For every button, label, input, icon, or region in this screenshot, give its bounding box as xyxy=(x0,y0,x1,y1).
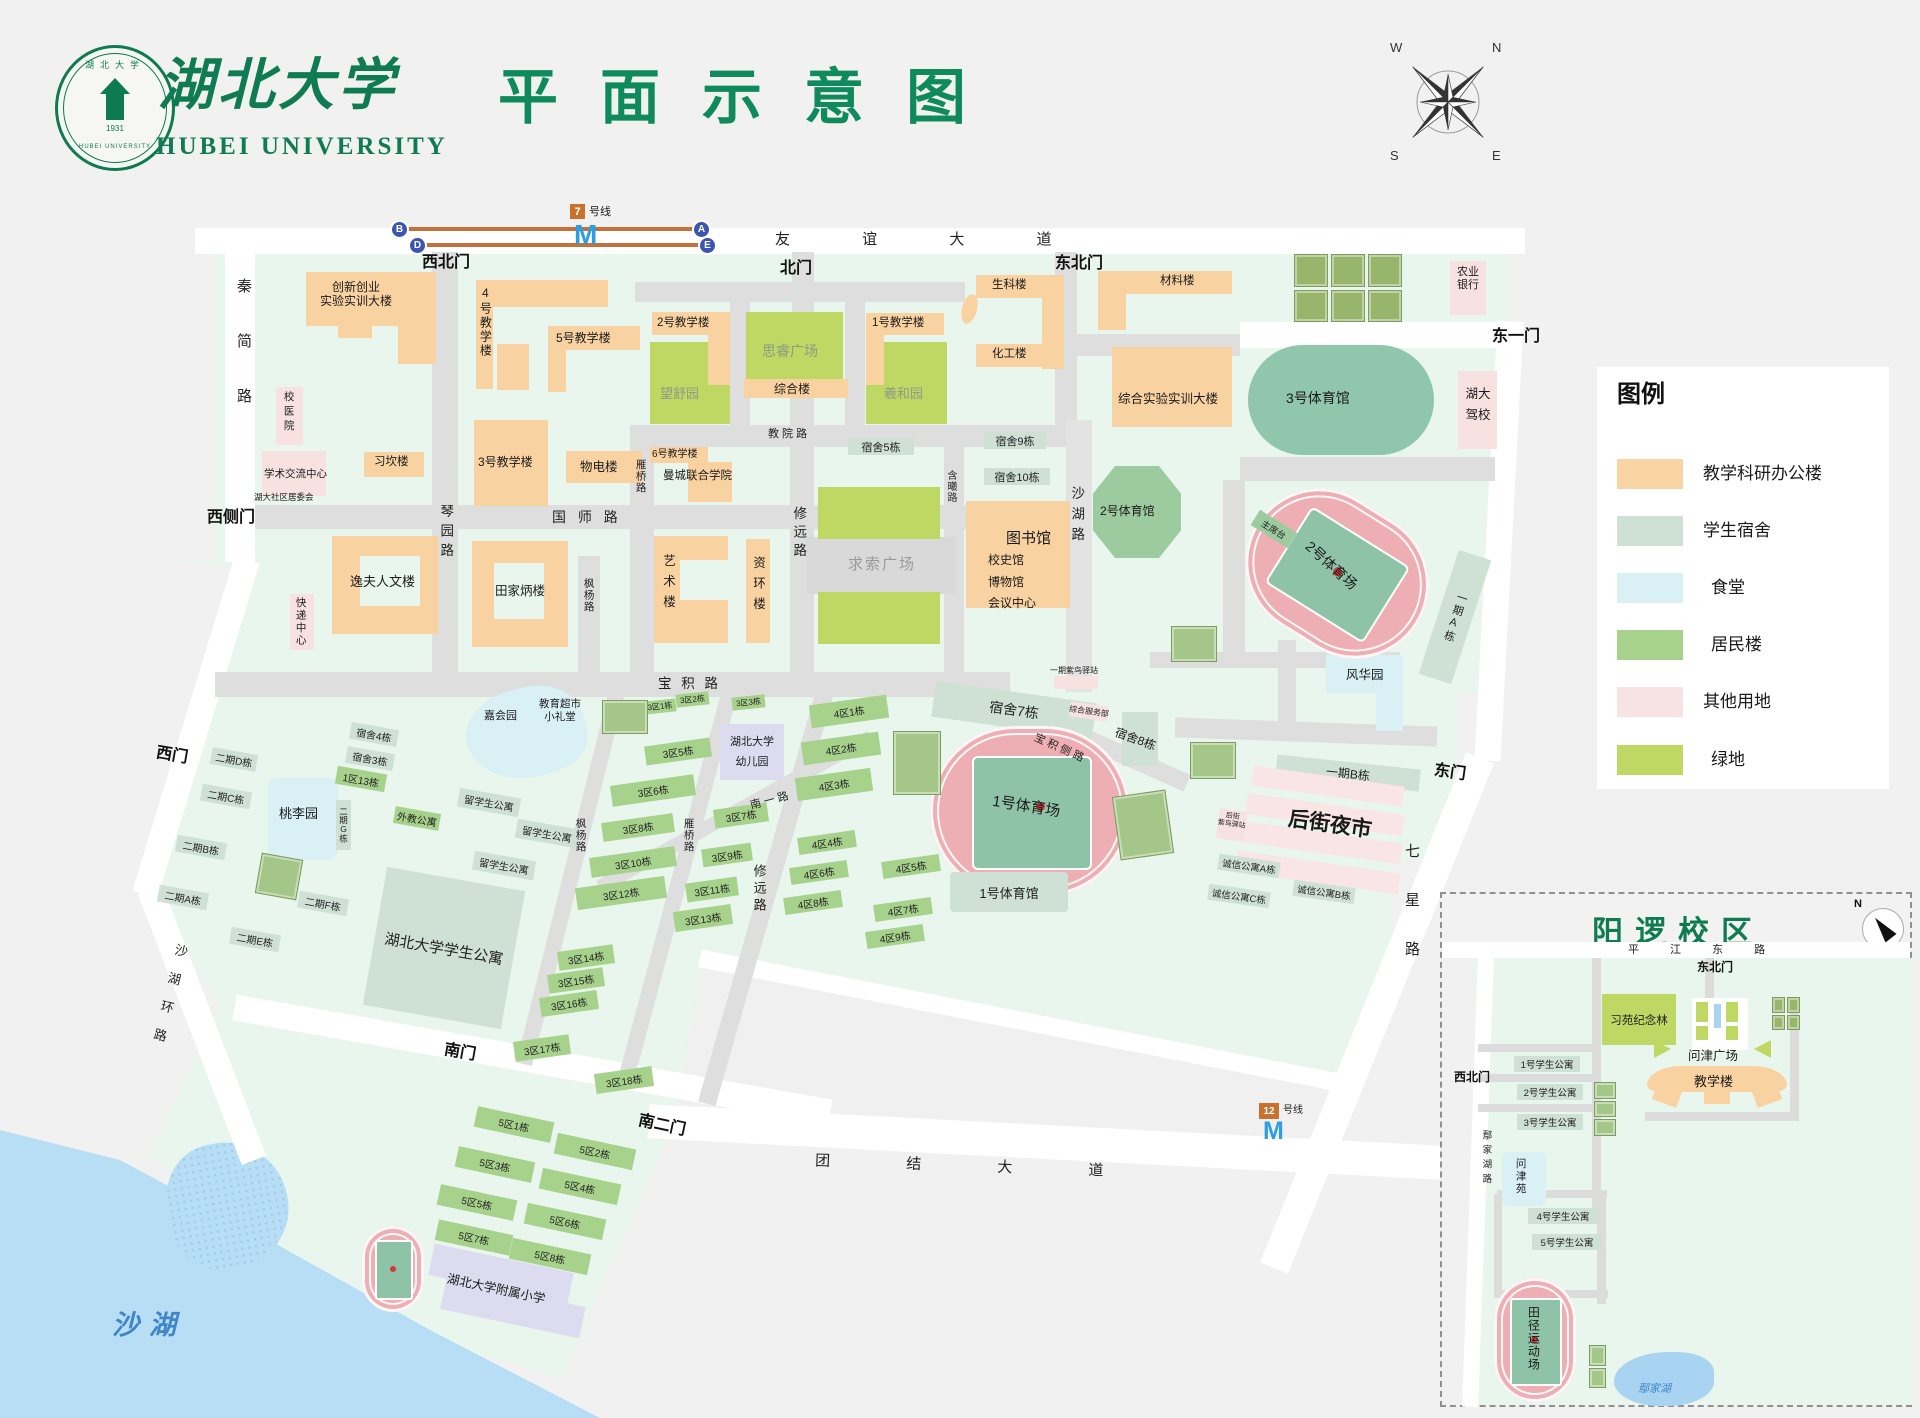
bld-gym1: 1号体育馆 xyxy=(950,872,1068,912)
lbl-road-qinjian: 秦简路 xyxy=(234,278,252,443)
bld-su9: 宿舍9栋 xyxy=(984,432,1046,449)
lbl-yey-1: 湖北大学 xyxy=(730,736,774,748)
pagoda-body xyxy=(106,94,124,120)
road-fengyang-upper xyxy=(578,556,600,678)
qiusuo-green-north xyxy=(818,487,940,539)
lbl-road-yanqiao-u: 雁桥路 xyxy=(634,459,647,494)
inset-xiyuan: 习苑纪念林 xyxy=(1602,994,1676,1045)
inset-court xyxy=(1589,1345,1606,1366)
lbl-xihe: 羲和园 xyxy=(884,386,923,402)
inset-path-h2 xyxy=(1478,1074,1596,1082)
lbl-qiusuo: 求索广场 xyxy=(848,556,916,574)
inset-gy1: 1号学生公寓 xyxy=(1514,1056,1580,1072)
inset-plaza-green-3 xyxy=(1726,1002,1738,1022)
road-inner-1 xyxy=(845,282,865,425)
pagoda-icon xyxy=(100,78,130,94)
inset-tennis-court xyxy=(1787,1015,1800,1031)
lbl-zihuan: 资环楼 xyxy=(750,556,765,618)
lbl-kuaidi: 快递中心 xyxy=(294,597,307,647)
inset-court xyxy=(1594,1101,1616,1118)
inset-plaza-tri-right xyxy=(1754,1040,1771,1058)
bld-yishu-notch xyxy=(680,560,728,600)
inset-tennis-court xyxy=(1787,997,1800,1013)
bld-yqzn xyxy=(1054,676,1098,689)
compass-e: E xyxy=(1492,148,1501,164)
lbl-road-baoji: 宝 积 路 xyxy=(658,676,721,692)
lbl-xiaoshiguan: 校史馆 xyxy=(988,553,1024,567)
inset-plaza-tri-left xyxy=(1654,1040,1671,1058)
inset-track: 田径运动场 xyxy=(1494,1278,1576,1402)
lbl-road-fengyang-d: 枫杨路 xyxy=(574,818,587,853)
bld-chuangxin-c xyxy=(338,326,372,338)
bld-zsys xyxy=(1112,347,1232,427)
legend-label-green: 绿地 xyxy=(1711,750,1745,770)
seal-year: 1931 xyxy=(58,124,172,134)
lbl-road-youyi: 友 谊 大 道 xyxy=(775,231,1086,249)
lbl-jysc: 教育超市小礼堂 xyxy=(530,698,590,723)
university-calligraphy: 湖北大学 xyxy=(158,52,398,119)
inset-lbl-track: 田径运动场 xyxy=(1526,1306,1540,1371)
inset-gy5: 5号学生公寓 xyxy=(1532,1234,1602,1250)
inset-gy3: 3号学生公寓 xyxy=(1517,1114,1583,1130)
lbl-sirui: 思睿广场 xyxy=(762,343,818,360)
legend-swatch-dorm xyxy=(1617,516,1683,546)
inset-lbl-jxl: 教学楼 xyxy=(1694,1074,1733,1090)
lbl-road-jiaoyuan: 教 院 路 xyxy=(768,428,807,441)
metro-exit-b: B xyxy=(390,220,409,239)
lbl-jysc-1: 教育超市 xyxy=(539,698,581,710)
lbl-yqzn: 一期紫鸟驿站 xyxy=(1050,666,1098,676)
inset-tennis-court xyxy=(1772,1015,1785,1031)
lbl-gym2: 2号体育馆 xyxy=(1100,504,1155,518)
lbl-road-guoshi: 国 师 路 xyxy=(552,509,622,526)
lbl-zonghelou: 综合楼 xyxy=(774,382,810,396)
lbl-cailiao: 材料楼 xyxy=(1160,275,1195,289)
tennis-courts-grid xyxy=(1294,254,1402,322)
lbl-bowuguan: 博物馆 xyxy=(988,575,1024,589)
inset-path-h4 xyxy=(1645,1112,1799,1121)
inset-gate-nw: 西北门 xyxy=(1454,1070,1490,1084)
lbl-zsys: 综合实验实训大楼 xyxy=(1118,392,1218,407)
inset-plaza-green-4 xyxy=(1726,1026,1738,1040)
inset-jxl-stub xyxy=(1704,1090,1730,1104)
lbl-road-yanqiao-d: 雁桥路 xyxy=(682,818,695,853)
lbl-huiyizhongxin: 会议中心 xyxy=(988,596,1036,610)
court-6 xyxy=(255,853,303,901)
inset-path-h3 xyxy=(1478,1104,1596,1112)
inset-gate-ne: 东北门 xyxy=(1697,960,1733,974)
seal-en-text: HUBEI UNIVERSITY xyxy=(58,144,172,151)
lbl-yifu: 逸夫人文楼 xyxy=(350,574,415,590)
inset-courts-lake xyxy=(1589,1345,1606,1388)
inset-gy4: 4号学生公寓 xyxy=(1528,1208,1598,1224)
legend-label-dorm: 学生宿舍 xyxy=(1703,521,1771,541)
lbl-line12-suffix: 号线 xyxy=(1283,1105,1303,1117)
inset-compass-n: N xyxy=(1854,898,1862,911)
metro-m-icon-7: M xyxy=(574,221,597,249)
lbl-t2: 2号教学楼 xyxy=(657,317,709,331)
lbl-t4: 4号教学楼 xyxy=(478,286,492,396)
lbl-jysc-2: 小礼堂 xyxy=(544,711,576,723)
compass-rose: W N S E xyxy=(1390,36,1506,166)
lbl-road-hanxi: 含曦路 xyxy=(944,470,956,503)
inset-lbl-lake: 鄢家湖 xyxy=(1638,1382,1671,1395)
gate-xibeimen: 西北门 xyxy=(422,253,470,272)
court-3 xyxy=(893,731,941,795)
lbl-chuangxin-1: 创新创业 xyxy=(332,280,380,294)
inset-compass-arrow xyxy=(1869,913,1896,942)
lbl-tianjiabing: 田家炳楼 xyxy=(495,584,545,599)
qiusuo-green-south xyxy=(818,592,940,644)
inset-court xyxy=(1594,1119,1616,1136)
lbl-shahu-lake: 沙湖 xyxy=(112,1310,186,1342)
tennis-court xyxy=(1294,290,1328,323)
stadium-sw-dot xyxy=(390,1266,396,1272)
inset-court xyxy=(1594,1082,1616,1099)
lbl-xikan: 习坎楼 xyxy=(374,456,409,470)
lbl-chuangxin: 创新创业实验实训大楼 xyxy=(306,280,406,309)
lbl-bank-1: 农业 xyxy=(1457,266,1479,278)
lbl-chuangxin-2: 实验实训大楼 xyxy=(320,294,392,308)
court-4 xyxy=(1112,790,1174,861)
lbl-jiaxiao: 湖大驾校 xyxy=(1460,384,1496,427)
inset-courts-mid xyxy=(1594,1082,1616,1136)
gate-dongyimen: 东一门 xyxy=(1492,327,1540,346)
compass-s: S xyxy=(1390,148,1399,164)
lbl-jiahui: 嘉会园 xyxy=(484,710,517,723)
metro-exit-d: D xyxy=(408,236,427,255)
lbl-mancheng: 曼城联合学院 xyxy=(663,470,732,484)
inset-lbl-plaza: 问津广场 xyxy=(1688,1049,1738,1064)
inset-plaza-green-1 xyxy=(1696,1002,1708,1022)
court-1 xyxy=(1171,626,1217,662)
road-north-service xyxy=(635,282,965,302)
lbl-shequ: 湖大社区居委会 xyxy=(254,492,314,502)
inset-plaza-pool xyxy=(1714,1004,1721,1028)
lbl-yiqiA: 一期A栋 xyxy=(1439,589,1471,644)
compass-n: N xyxy=(1492,40,1501,56)
inset-plaza-green-2 xyxy=(1696,1026,1708,1040)
inset-gy2: 2号学生公寓 xyxy=(1517,1084,1583,1100)
lbl-road-xiuyuan-u: 修远路 xyxy=(790,506,806,562)
legend-title: 图例 xyxy=(1617,381,1665,410)
lbl-road-shahu: 沙湖路 xyxy=(1068,486,1084,548)
bld-t2-leg xyxy=(708,335,730,385)
legend-swatch-green xyxy=(1617,745,1683,775)
inset-path-h1 xyxy=(1478,1044,1596,1052)
metro-line7-badge: 7 xyxy=(570,204,585,219)
page-title: 平面示意图 xyxy=(498,62,1008,134)
bld-eqG: 二期G栋 xyxy=(336,800,351,850)
lbl-wudian: 物电楼 xyxy=(580,460,618,475)
lbl-yishu: 艺术楼 xyxy=(660,554,675,616)
lbl-line7-suffix: 号线 xyxy=(589,206,611,219)
gate-xicemen: 西侧门 xyxy=(207,508,255,527)
lbl-jiaxiao-2: 驾校 xyxy=(1465,408,1490,422)
lbl-library: 图书馆 xyxy=(1006,530,1051,548)
bld-su10: 宿舍10栋 xyxy=(984,468,1050,485)
bld-t4-blob xyxy=(497,344,529,390)
legend-swatch-resident xyxy=(1617,630,1683,660)
inset-lbl-road-top: 平 江 东 路 xyxy=(1628,944,1779,957)
lbl-xueshu: 学术交流中心 xyxy=(264,468,327,481)
lbl-shengke: 生科楼 xyxy=(992,279,1027,293)
lbl-t6: 6号教学楼 xyxy=(652,449,698,461)
legend-label-canteen: 食堂 xyxy=(1711,578,1745,598)
lbl-wangshu: 望舒园 xyxy=(660,386,699,402)
bld-cailiao-leg xyxy=(1098,294,1126,330)
tennis-court xyxy=(1331,254,1365,287)
legend-label-teaching: 教学科研办公楼 xyxy=(1703,464,1822,484)
legend-label-resident: 居民楼 xyxy=(1711,635,1762,655)
lbl-xiaoyiyuan: 校医院 xyxy=(282,391,295,435)
court-2 xyxy=(1190,742,1236,779)
bld-su5: 宿舍5栋 xyxy=(848,438,914,455)
metro-line7-b-a xyxy=(402,227,698,231)
stadium-sw-small xyxy=(362,1226,424,1312)
legend: 图例 教学科研办公楼 学生宿舍 食堂 居民楼 其他用地 绿地 xyxy=(1597,367,1889,789)
lbl-taoli: 桃李园 xyxy=(279,806,318,822)
compass-w: W xyxy=(1390,40,1402,56)
tennis-court xyxy=(1331,290,1365,323)
legend-swatch-other xyxy=(1617,687,1683,717)
lbl-yey-2: 幼儿园 xyxy=(736,756,769,768)
inset-lbl-wjy: 问津苑 xyxy=(1514,1158,1527,1196)
inset-tennis-court xyxy=(1772,997,1785,1013)
lbl-gym3: 3号体育馆 xyxy=(1286,390,1350,407)
bld-hbgy: 湖北大学学生公寓 xyxy=(363,867,525,1029)
lbl-jiaxiao-1: 湖大 xyxy=(1465,387,1490,401)
lbl-bank: 农业银行 xyxy=(1452,266,1484,292)
lbl-youeryuan: 湖北大学幼儿园 xyxy=(722,733,782,773)
tennis-court xyxy=(1368,290,1402,323)
legend-swatch-teaching xyxy=(1617,459,1683,489)
metro-m-icon-12: M xyxy=(1263,1119,1284,1144)
inset-tennis xyxy=(1772,997,1800,1030)
tennis-court xyxy=(1294,254,1328,287)
court-5 xyxy=(602,700,648,734)
gate-beimen: 北门 xyxy=(780,259,812,278)
gate-dongbeimen: 东北门 xyxy=(1055,254,1103,273)
lbl-road-qixing: 七星路 xyxy=(1402,843,1420,990)
lbl-t1: 1号教学楼 xyxy=(872,317,924,331)
legend-label-other: 其他用地 xyxy=(1703,692,1771,712)
university-en-name: HUBEI UNIVERSITY xyxy=(156,132,448,162)
lbl-t3: 3号教学楼 xyxy=(478,455,533,469)
metro-line7-d-e xyxy=(420,243,710,247)
bld-t1-leg xyxy=(866,335,884,385)
lbl-road-fengyang-u: 枫杨路 xyxy=(582,578,595,613)
lbl-huagong: 化工楼 xyxy=(992,348,1027,362)
campus-map: 湖北大学 1931 HUBEI UNIVERSITY 湖北大学 HUBEI UN… xyxy=(0,0,1920,1418)
inset-lbl-road-left: 鄢家湖路 xyxy=(1480,1130,1491,1188)
bld-t5-leg xyxy=(548,350,566,392)
seal-cn-text: 湖北大学 xyxy=(58,60,172,71)
metro-exit-e: E xyxy=(698,236,717,255)
legend-swatch-canteen xyxy=(1617,573,1683,603)
lbl-road-xiuyuan-d: 修远路 xyxy=(751,864,767,915)
lbl-bank-2: 银行 xyxy=(1457,279,1479,291)
bld-t4-bar xyxy=(476,280,608,307)
lbl-t5: 5号教学楼 xyxy=(556,331,611,345)
lbl-eqG: 二期G栋 xyxy=(338,807,350,843)
tennis-court xyxy=(1368,254,1402,287)
lbl-road-qinyuan: 琴园路 xyxy=(437,504,453,563)
inset-lake xyxy=(1614,1352,1714,1406)
inset-court xyxy=(1589,1368,1606,1389)
yangluo-campus-inset: 阳逻校区 N 平 江 东 路 东北门 西北门 鄢家湖路 习苑纪念林 问 xyxy=(1440,892,1912,1407)
